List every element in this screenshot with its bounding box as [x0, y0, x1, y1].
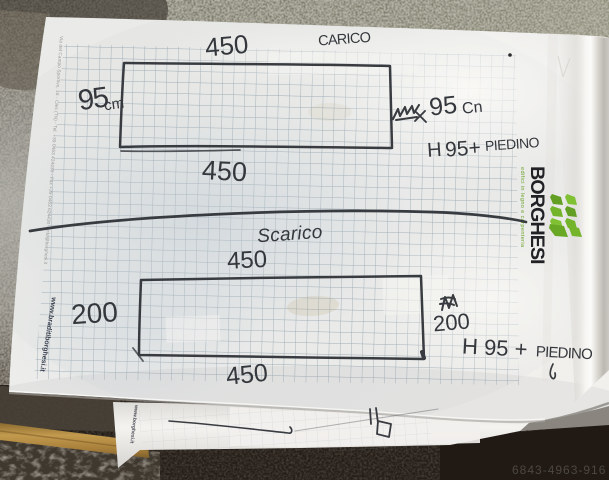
svg-text:200: 200 [432, 308, 471, 336]
svg-text:6843-4963-916: 6843-4963-916 [512, 463, 606, 477]
svg-text:450: 450 [204, 29, 250, 63]
svg-text:450: 450 [201, 155, 248, 187]
svg-text:H: H [426, 139, 442, 162]
svg-text:450: 450 [226, 246, 267, 275]
svg-text:95+: 95+ [444, 136, 481, 161]
svg-text:450: 450 [225, 359, 269, 391]
svg-text:95: 95 [428, 91, 459, 122]
svg-text:BORGHESI: BORGHESI [526, 166, 548, 264]
svg-text:200: 200 [70, 296, 119, 330]
svg-text:Cn: Cn [461, 99, 483, 118]
svg-text:H 95 +: H 95 + [461, 333, 528, 361]
svg-text:PIEDINO: PIEDINO [535, 343, 592, 363]
svg-text:edifici in legno e carpenteria: edifici in legno e carpenteria [519, 167, 525, 248]
svg-text:cm: cm [103, 95, 125, 115]
